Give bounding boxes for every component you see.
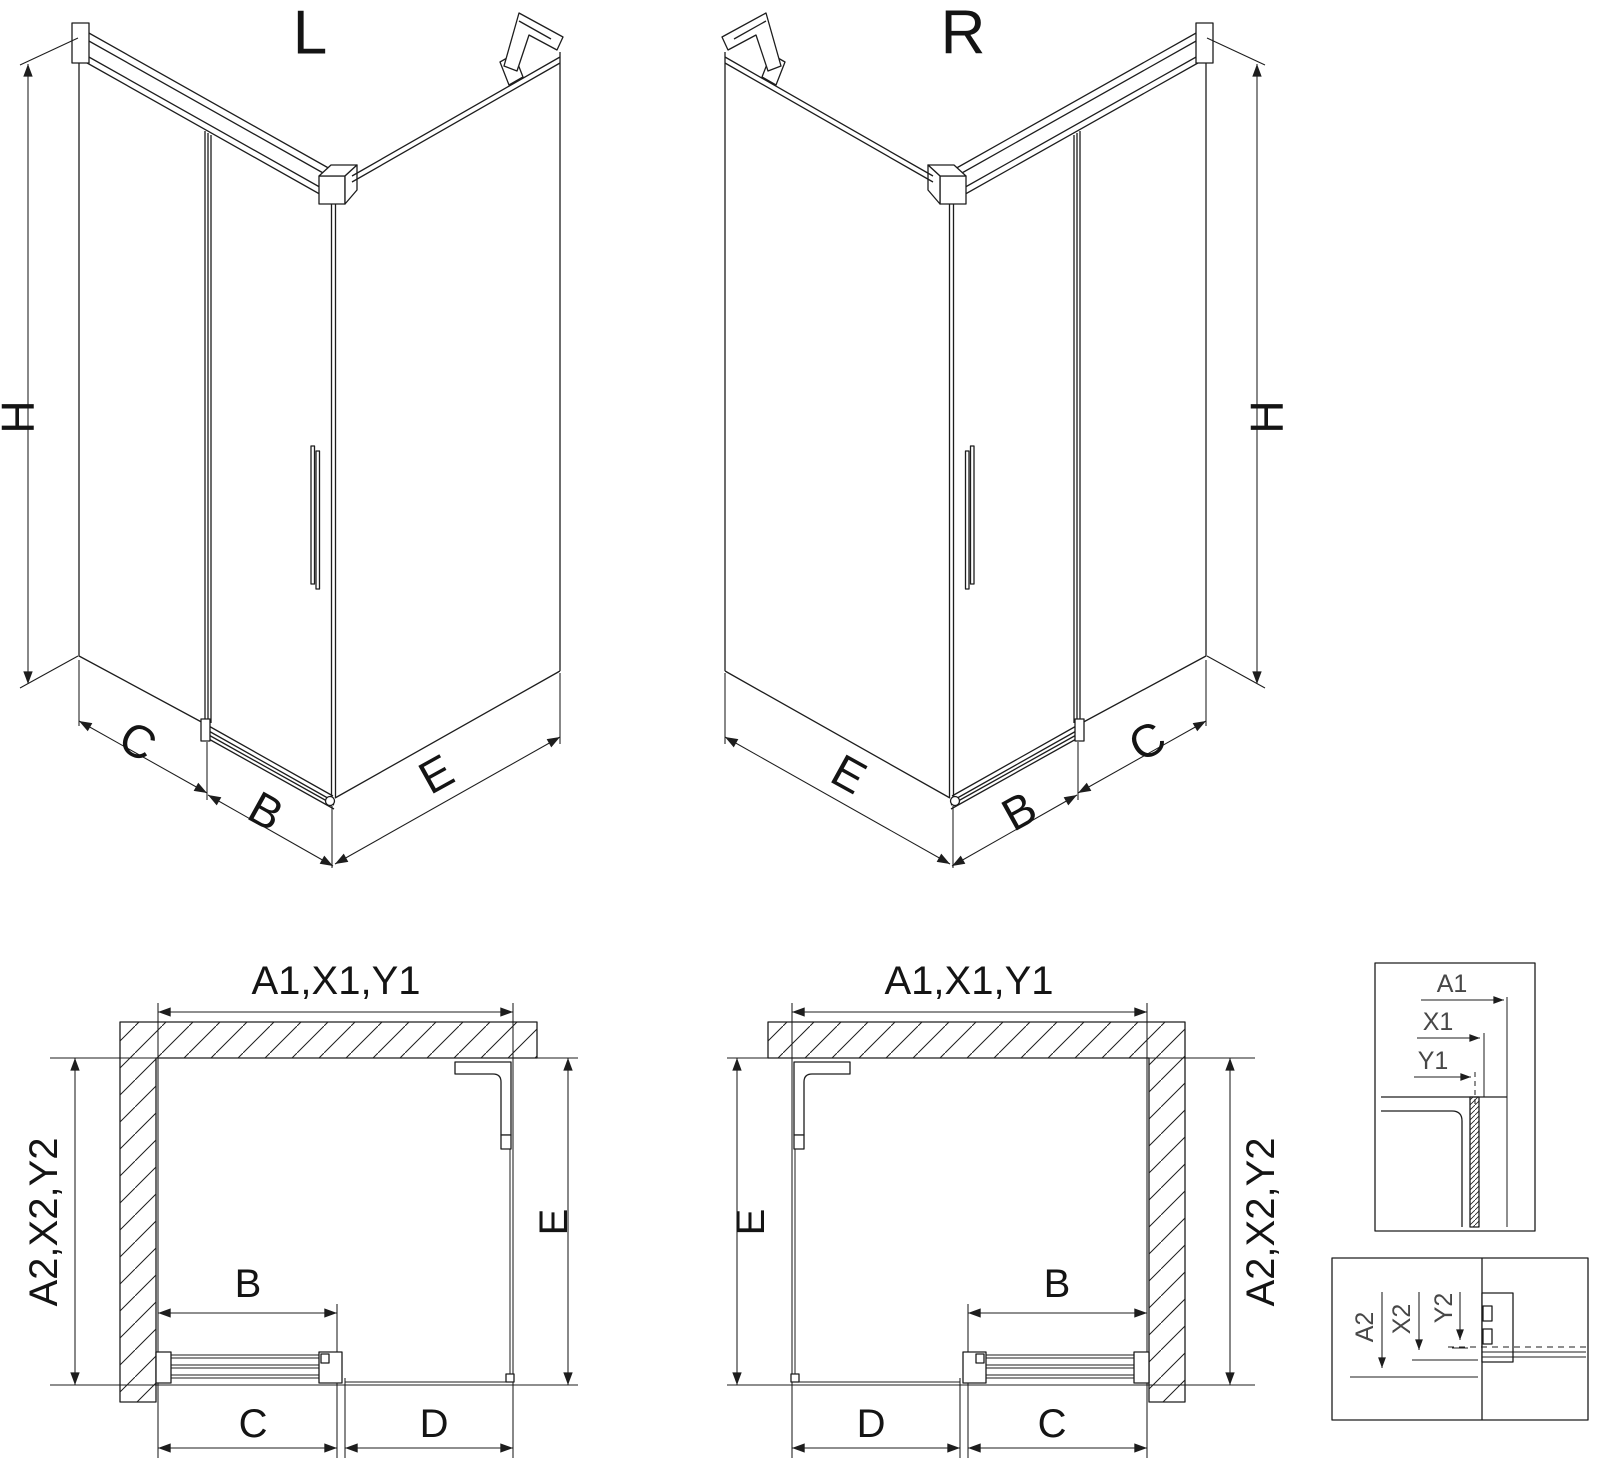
detail-depth-dim-mid-label: X2: [1388, 1304, 1416, 1335]
detail-width-dim-mid-label: X1: [1423, 1008, 1454, 1036]
iso-left-dim-height-label: H: [0, 400, 44, 433]
detail-depth-dim-inner-label: Y2: [1430, 1293, 1458, 1324]
iso-left-dim-door-label: B: [240, 781, 292, 841]
iso-right-dim-side-label: C: [1120, 710, 1174, 772]
detail-depth-dim-outer-label: A2: [1351, 1312, 1379, 1343]
iso-right-dim-height-label: H: [1241, 400, 1293, 433]
plan-right-dim-bottom-second-label: C: [1038, 1402, 1067, 1446]
iso-left-dim-side-label: C: [111, 710, 165, 772]
plan-left-dim-width-label: A1,X1,Y1: [251, 959, 420, 1003]
shower-enclosure-technical-drawing: L H C B E R H C B E A1,X1,Y1 A2,X2,Y2 E …: [0, 0, 1600, 1458]
detail-width-dim-outer-label: A1: [1437, 970, 1468, 998]
detail-width-profile-view: [1375, 963, 1535, 1231]
glass-section: [1470, 1097, 1479, 1227]
iso-left-title: L: [293, 0, 327, 68]
plan-right-dim-bottom-first-label: D: [857, 1402, 886, 1446]
plan-left-dim-depth-inner-label: E: [532, 1209, 576, 1236]
iso-right-dim-front-label: E: [823, 744, 875, 804]
plan-right-dim-width-label: A1,X1,Y1: [884, 959, 1053, 1003]
plan-right-wall-hatch: [768, 1022, 1185, 1402]
plan-left-dim-bottom-second-label: D: [420, 1402, 449, 1446]
plan-left-wall-hatch: [120, 1022, 537, 1402]
plan-left-dim-door-label: B: [235, 1262, 262, 1306]
plan-left-dim-bottom-first-label: C: [239, 1402, 268, 1446]
iso-right-dim-door-label: B: [993, 781, 1045, 841]
iso-left-dim-front-label: E: [410, 744, 462, 804]
plan-left-dim-depth-label: A2,X2,Y2: [22, 1137, 66, 1306]
labels-layer: L H C B E R H C B E A1,X1,Y1 A2,X2,Y2 E …: [0, 0, 1467, 1446]
drawing-canvas: L H C B E R H C B E A1,X1,Y1 A2,X2,Y2 E …: [0, 0, 1600, 1458]
plan-right-dim-depth-inner-label: E: [729, 1209, 773, 1236]
detail-width-dim-inner-label: Y1: [1418, 1047, 1449, 1075]
plan-right-dim-depth-label: A2,X2,Y2: [1239, 1137, 1283, 1306]
iso-left-view: [20, 13, 563, 868]
wall-profile-section: [1381, 1097, 1507, 1227]
plan-right-dim-door-label: B: [1044, 1262, 1071, 1306]
iso-right-title: R: [941, 0, 986, 68]
iso-right-view: [722, 13, 1265, 868]
